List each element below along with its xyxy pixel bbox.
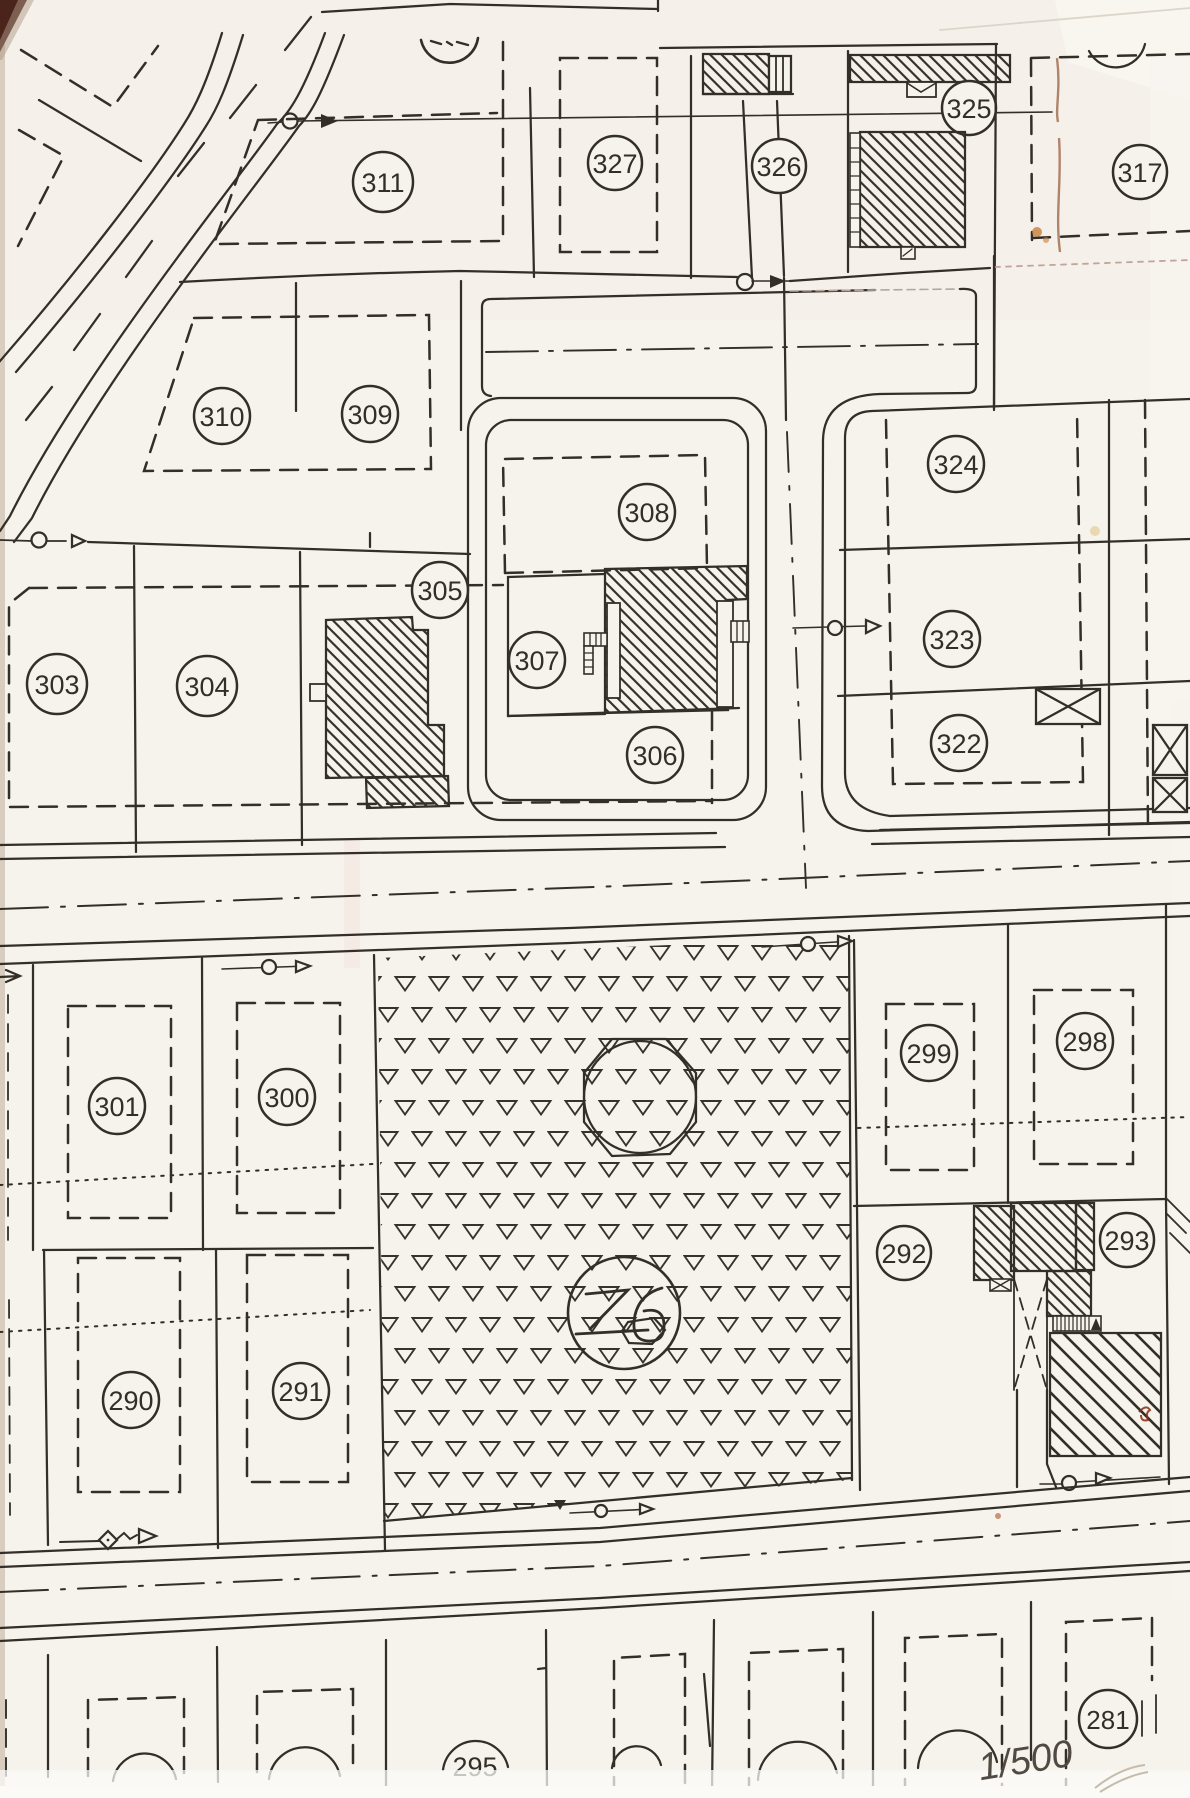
svg-text:293: 293 bbox=[1104, 1226, 1149, 1256]
svg-text:300: 300 bbox=[264, 1083, 309, 1113]
svg-text:325: 325 bbox=[946, 94, 991, 124]
svg-text:307: 307 bbox=[514, 646, 559, 676]
svg-text:306: 306 bbox=[632, 741, 677, 771]
svg-text:303: 303 bbox=[34, 670, 79, 700]
svg-text:323: 323 bbox=[929, 625, 974, 655]
svg-text:305: 305 bbox=[417, 576, 462, 606]
svg-text:298: 298 bbox=[1062, 1027, 1107, 1057]
svg-text:310: 310 bbox=[199, 402, 244, 432]
svg-text:281: 281 bbox=[1086, 1705, 1129, 1735]
svg-text:308: 308 bbox=[624, 498, 669, 528]
svg-text:327: 327 bbox=[592, 149, 637, 179]
svg-text:299: 299 bbox=[906, 1039, 951, 1069]
svg-text:292: 292 bbox=[881, 1239, 926, 1269]
svg-text:311: 311 bbox=[361, 168, 404, 198]
svg-text:309: 309 bbox=[347, 400, 392, 430]
svg-text:291: 291 bbox=[278, 1377, 323, 1407]
svg-text:326: 326 bbox=[756, 152, 801, 182]
svg-text:301: 301 bbox=[94, 1092, 139, 1122]
svg-text:290: 290 bbox=[108, 1386, 153, 1416]
svg-text:304: 304 bbox=[184, 672, 229, 702]
svg-text:322: 322 bbox=[936, 729, 981, 759]
svg-text:324: 324 bbox=[933, 450, 978, 480]
svg-text:317: 317 bbox=[1117, 158, 1162, 188]
